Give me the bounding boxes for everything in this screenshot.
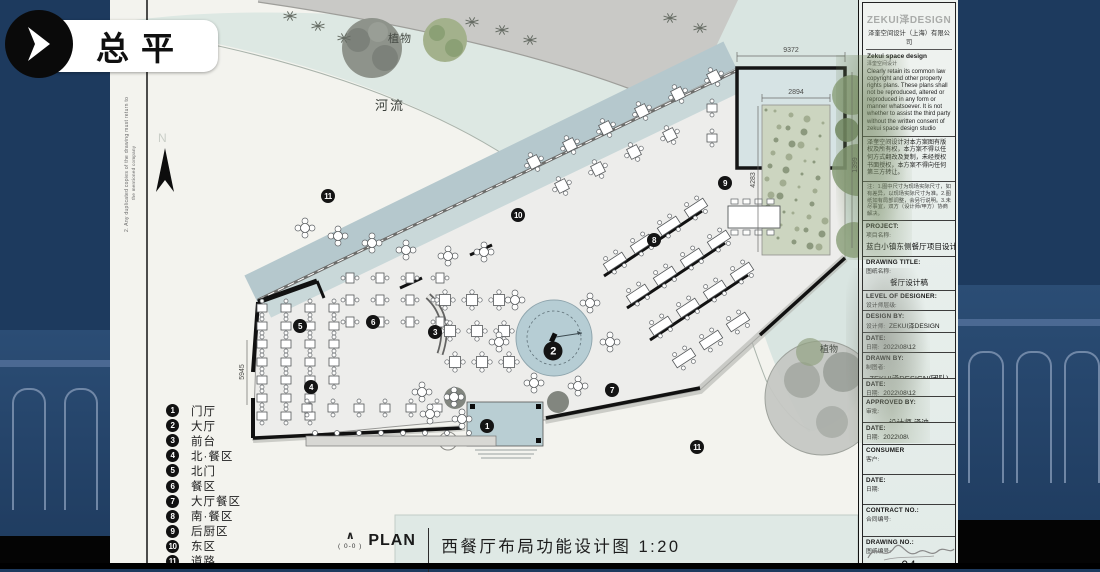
- title-block-row-11: CONTRACT NO.:合同编号:: [863, 504, 955, 536]
- field-value: 2022\08\12: [883, 390, 916, 397]
- dim-4283: 4283: [750, 172, 757, 188]
- title-block-row-6: DATE:日期:2022\08\12: [863, 378, 955, 396]
- field-label-cn: 日期:2022\08\12: [866, 388, 952, 397]
- dim-2894: 2894: [788, 89, 804, 96]
- legend-item-8: 8南·餐区: [166, 509, 241, 524]
- drawing-notes: 注：1.图中尺寸为现场实际尺寸，如有差异，以现场实际尺寸为准。2.图纸如有局部调…: [867, 184, 951, 218]
- legend-label: 后厨区: [191, 523, 229, 539]
- left-facade-sketch: [0, 330, 110, 536]
- field-label-cn: 审批:: [866, 406, 952, 415]
- legend-number: 7: [166, 495, 179, 508]
- field-label-en: DATE:: [866, 477, 952, 484]
- title-block-rows: PROJECT:项目名称:蓝白小镇东侧餐厅项目设计DRAWING TITLE:图…: [863, 220, 955, 567]
- copyright-en: Clearly retain its common law copyright …: [867, 69, 951, 133]
- dim-9372: 9372: [783, 47, 799, 54]
- field-label-cn: 项目名称:: [866, 230, 952, 239]
- legend-number: 6: [166, 480, 179, 493]
- field-label-cn: 日期:2022\08\: [866, 432, 952, 441]
- chevron-right-icon: [22, 25, 56, 63]
- title-block-row-4: DATE:日期:2022\08\12: [863, 332, 955, 352]
- legend-number: 4: [166, 449, 179, 462]
- copyright-cn: 泽奎空间设计对本方案图有版权及所有权，本方案不得以任何方式翻改及复制，未经授权书…: [867, 139, 951, 177]
- field-value: 餐厅设计稿: [866, 277, 952, 288]
- central-bar-circle: [516, 300, 592, 376]
- right-facade-sketch: [958, 285, 1100, 520]
- dim-5945: 5945: [239, 364, 246, 380]
- legend-number: 8: [166, 510, 179, 523]
- title-block-row-2: LEVEL OF DESIGNER:设计师层级:: [863, 290, 955, 310]
- plan-legend: 1门厅2大厅3前台4北·餐区5北门6餐区7大厅餐区8南·餐区9后厨区10东区11…: [166, 403, 241, 569]
- slide-canvas: { "tab": { "label": "总平" }, "plan": { "l…: [0, 0, 1100, 569]
- signature: [864, 534, 956, 566]
- title-block-row-7: APPROVED BY:审批:设计师.泽迪: [863, 396, 955, 422]
- field-label-en: DATE:: [866, 381, 952, 388]
- title-block: ZEKUI泽DESIGN 泽奎空间设计（上海）有限公司 Zekui space …: [858, 0, 958, 569]
- legend-number: 5: [166, 464, 179, 477]
- legend-item-1: 1门厅: [166, 403, 241, 418]
- field-value: ZEKUI泽DESIGN: [889, 323, 940, 330]
- legend-item-6: 6餐区: [166, 478, 241, 493]
- legend-number: 9: [166, 525, 179, 538]
- legend-number: 3: [166, 434, 179, 447]
- title-block-row-8: DATE:日期:2022\08\: [863, 422, 955, 444]
- field-label-en: DESIGN BY:: [866, 313, 952, 320]
- legend-item-2: 2大厅: [166, 418, 241, 433]
- legend-item-7: 7大厅餐区: [166, 494, 241, 509]
- legend-label: 大厅餐区: [191, 493, 241, 509]
- field-label-en: PROJECT:: [866, 223, 952, 230]
- caret-icon: ∧: [346, 532, 355, 540]
- bottom-right-black-strip: [958, 520, 1100, 569]
- field-label-cn: 图纸名称:: [866, 266, 952, 275]
- field-label-en: DATE:: [866, 425, 952, 432]
- legend-label: 北门: [191, 463, 216, 479]
- company-name-en: Zekui space design: [867, 53, 951, 60]
- margin-note-1: 2. Any duplicated copies of the drawing …: [124, 97, 130, 232]
- field-value: 2022\08\12: [883, 344, 916, 351]
- legend-item-9: 9后厨区: [166, 524, 241, 539]
- legend-item-3: 3前台: [166, 433, 241, 448]
- field-label-en: CONSUMER: [866, 447, 952, 454]
- legend-item-5: 5北门: [166, 463, 241, 478]
- bottom-black-bar: [0, 563, 1100, 569]
- legend-item-10: 10东区: [166, 539, 241, 554]
- margin-note-2: the mentioned company: [131, 146, 136, 200]
- title-block-row-9: CONSUMER客户:: [863, 444, 955, 474]
- title-block-row-10: DATE:日期:: [863, 474, 955, 504]
- legend-label: 东区: [191, 538, 216, 554]
- drawing-title-caption: 西餐厅布局功能设计图 1:20: [441, 533, 680, 557]
- river-label: 河流: [375, 98, 405, 113]
- field-label-en: DATE:: [866, 335, 952, 342]
- field-label-cn: 合同编号:: [866, 514, 952, 523]
- section-indicator: ∧ ( 0-0 ): [338, 532, 362, 550]
- legend-label: 餐区: [191, 478, 216, 494]
- field-label-cn: 日期:2022\08\12: [866, 342, 952, 351]
- legend-label: 北·餐区: [191, 448, 233, 464]
- legend-label: 大厅: [191, 418, 216, 434]
- title-block-row-3: DESIGN BY:设计师:ZEKUI泽DESIGN: [863, 310, 955, 332]
- field-value: 蓝白小镇东侧餐厅项目设计: [866, 241, 952, 252]
- slide-tab-arrow-button[interactable]: [5, 10, 73, 78]
- legend-number: 2: [166, 419, 179, 432]
- slide-tab-label: 总平: [96, 22, 186, 70]
- title-block-box: ZEKUI泽DESIGN 泽奎空间设计（上海）有限公司 Zekui space …: [862, 2, 956, 567]
- field-value: 2022\08\: [883, 434, 908, 441]
- legend-label: 门厅: [191, 403, 216, 419]
- svg-text:N: N: [158, 131, 167, 145]
- legend-number: 10: [166, 540, 179, 553]
- field-label-en: DRAWN BY:: [866, 355, 952, 362]
- plan-word: PLAN: [368, 532, 416, 550]
- title-block-row-0: PROJECT:项目名称:蓝白小镇东侧餐厅项目设计: [863, 220, 955, 256]
- field-label-cn: 制图者:: [866, 362, 952, 371]
- field-label-cn: 设计师层级:: [866, 300, 952, 309]
- field-label-cn: 日期:: [866, 484, 952, 493]
- company-name-cn: 泽奎空间设计（上海）有限公司: [866, 26, 952, 50]
- field-label-en: CONTRACT NO.:: [866, 507, 952, 514]
- plants-label-top: 植物: [388, 31, 412, 45]
- brand-name: ZEKUI泽DESIGN: [863, 11, 955, 26]
- field-label-en: LEVEL OF DESIGNER:: [866, 293, 952, 300]
- title-block-row-5: DRAWN BY:制图者:ZEKUI泽DESIGN(团队): [863, 352, 955, 378]
- divider: [863, 181, 955, 182]
- plants-label-right: 植物: [820, 343, 838, 354]
- field-value: ZEKUI泽DESIGN(团队): [866, 373, 952, 379]
- divider: [863, 136, 955, 137]
- legend-number: 1: [166, 404, 179, 417]
- slide-tab[interactable]: 总平: [54, 20, 218, 72]
- south-counter: [306, 436, 496, 446]
- title-block-row-1: DRAWING TITLE:图纸名称:餐厅设计稿: [863, 256, 955, 290]
- field-label-en: DRAWING TITLE:: [866, 259, 952, 266]
- company-name-en2: 泽奎空间设计: [867, 60, 951, 67]
- legend-label: 南·餐区: [191, 508, 233, 524]
- legend-item-4: 4北·餐区: [166, 448, 241, 463]
- field-label-cn: 设计师:ZEKUI泽DESIGN: [866, 320, 952, 330]
- section-ref: ( 0-0 ): [338, 543, 362, 550]
- legend-label: 前台: [191, 433, 216, 449]
- field-label-cn: 客户:: [866, 454, 952, 463]
- field-label-en: APPROVED BY:: [866, 399, 952, 406]
